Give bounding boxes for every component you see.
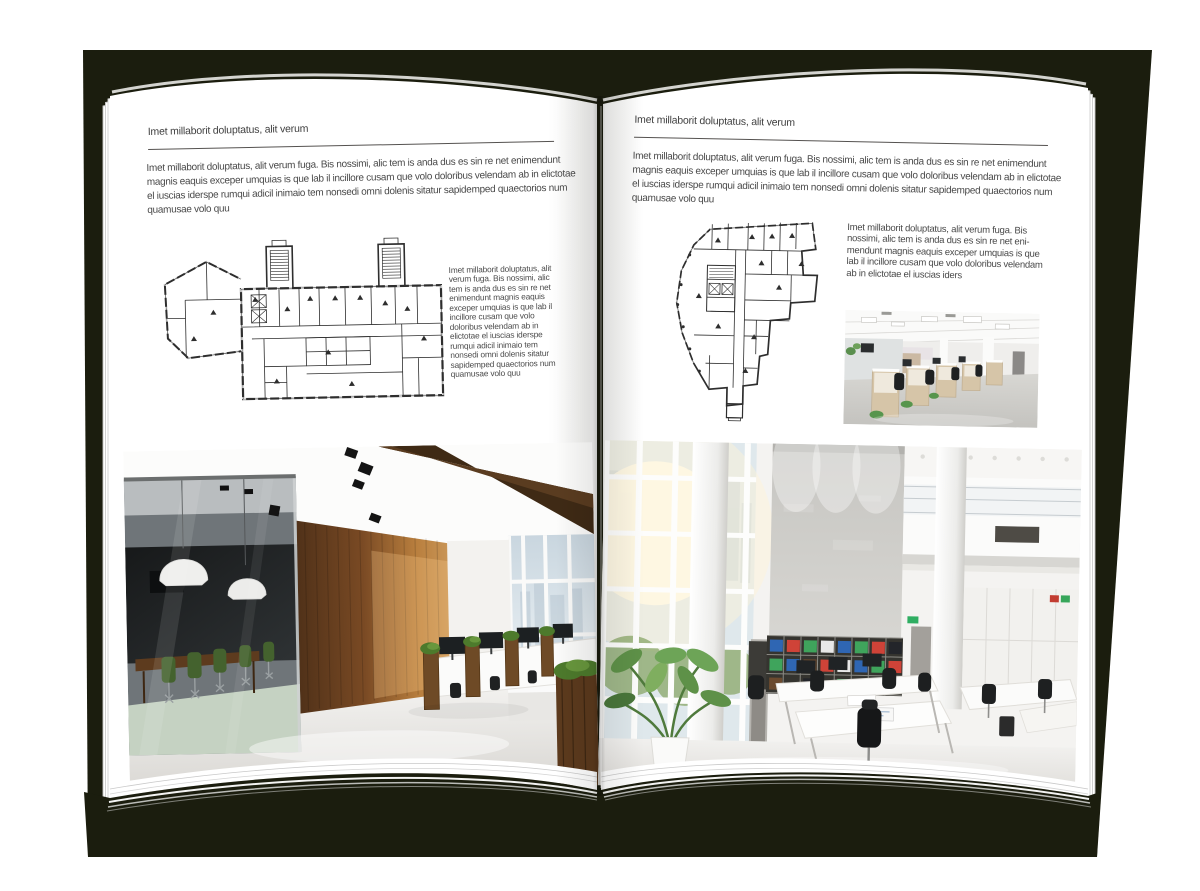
brochure-mockup: Imet millaborit doluptatus, alit verum I… [0,0,1200,891]
window-wall [598,440,775,788]
right-side-text: Imet millaborit doluptatus, alit verum f… [846,222,1052,283]
right-page-header: Imet millaborit doluptatus, alit verum [634,114,795,129]
floorplan-room-markers [694,231,805,374]
right-header-rule [634,137,1048,147]
right-office-photo-large [598,440,1082,795]
right-floorplan-figure [648,214,848,424]
right-office-photo-small [843,310,1039,428]
concrete-wall [769,440,905,642]
right-intro-paragraph: Imet millaborit doluptatus, alit verum f… [632,150,1069,215]
mezzanine-balcony [902,446,1081,574]
right-page: Imet millaborit doluptatus, alit verum I… [0,0,1200,891]
